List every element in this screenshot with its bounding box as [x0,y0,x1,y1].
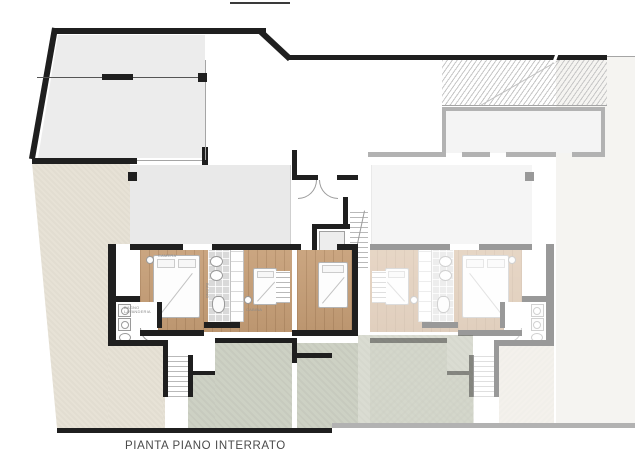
hatch-bottom-line [442,105,607,106]
washbasin [210,256,223,267]
single-bed [253,268,277,305]
site-edge-bottom-left [57,428,332,433]
driveway-wall-segment [102,74,133,80]
door-arc [319,180,338,199]
washbasin [439,256,452,267]
washbasin [439,270,452,281]
side-table [410,296,418,304]
wall-segment [108,296,140,302]
faded-wall [601,111,605,153]
room-label-lavanderia: BAGNO LAVANDERIA [124,306,158,314]
room-upper-right-line [371,165,372,244]
site-edge-bottom-right [332,423,635,428]
room-upper [130,165,290,244]
room-label-camera: CAMERA [158,254,176,258]
washer [531,304,544,317]
wall-segment [352,244,358,336]
wall-segment [500,302,505,328]
bedroom3-bed [318,262,348,308]
nightstand [508,256,516,264]
faded-wall [572,152,605,157]
outer-wall-diagonal-top [258,29,292,61]
floor-plan-canvas: CAMERA BAGNO CABINA BAGNO LAVANDERIA PIA… [0,0,635,473]
room-upper [372,165,532,244]
wall-segment [422,322,458,328]
terrain-patch [499,346,554,428]
room-upper-right-line [290,165,291,244]
wardrobe-shelving [418,250,432,322]
wall-segment [546,244,554,346]
wall-segment [140,330,204,336]
washer [531,318,544,331]
wall-segment [522,296,554,302]
closet-steps [276,271,290,303]
retaining-wall [292,338,297,363]
faded-wall [442,107,605,111]
boundary-line-top [230,2,290,4]
patio-upper [215,343,292,428]
single-bed [385,268,409,305]
wall-segment [204,322,240,328]
faded-room-top-right [446,111,601,153]
wardrobe-shelving [230,250,244,322]
unit-a-apartment [108,150,292,428]
toilet [212,296,225,313]
hatch-band [442,60,607,105]
wall-segment [108,244,116,346]
room-label-cabina: CABINA [246,308,262,312]
garden-staircase [168,355,188,397]
boundary-line-right [607,56,635,57]
unit-b-faded-mirror [370,150,554,428]
retaining-wall [297,353,332,358]
plan-caption: PIANTA PIANO INTERRATO [125,440,286,452]
wall-segment [32,158,137,164]
room-label-bagno: BAGNO [205,283,209,298]
core-wall [337,175,358,180]
wall-pillar [525,172,534,181]
elevator-wall [312,224,352,229]
washbasin [210,270,223,281]
wall-pillar [128,172,137,181]
nightstand [146,256,154,264]
stair-side-wall [188,355,193,397]
wall-segment [292,330,358,336]
toilet [437,296,450,313]
garden-staircase [474,355,494,397]
wall-segment [458,330,522,336]
side-table [244,296,252,304]
door-arc [298,180,317,199]
stair-side-wall [469,355,474,397]
faded-wall [442,111,446,153]
driveway-post [198,73,207,82]
outer-wall-top-right [289,55,607,60]
terrain-patch [108,346,163,428]
washer [118,318,131,331]
closet-steps [372,271,386,303]
patio-upper [370,343,447,428]
room-divider-line [137,160,202,161]
outer-wall-top [55,28,266,34]
